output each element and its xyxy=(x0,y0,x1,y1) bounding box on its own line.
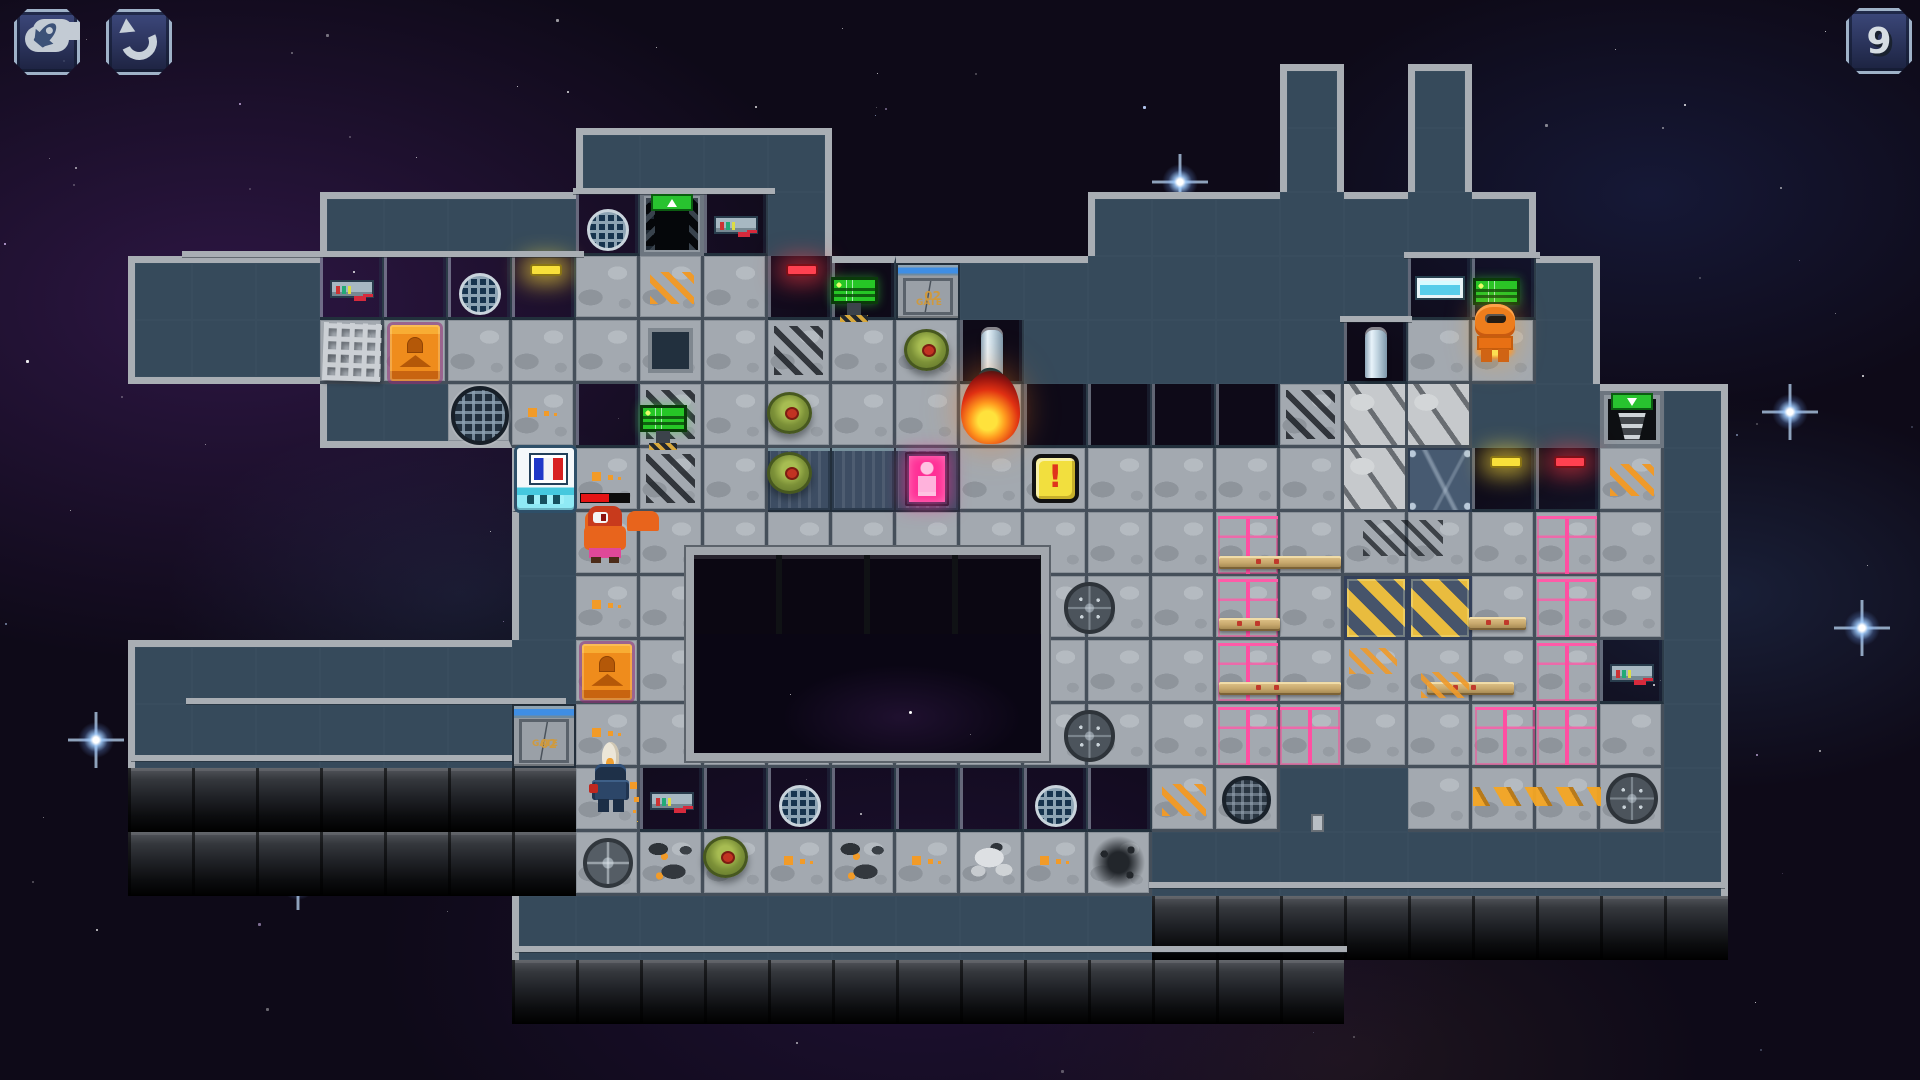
tile-floor-chevrons xyxy=(1600,448,1664,512)
tile-hull xyxy=(960,256,1024,320)
exit-up-sign xyxy=(651,194,693,211)
crate xyxy=(1537,643,1597,701)
tile-hull xyxy=(1344,768,1408,832)
tile-hull xyxy=(192,320,256,384)
tile-engine-block xyxy=(960,960,1024,1024)
skidsmall xyxy=(1363,520,1443,556)
undo-button[interactable] xyxy=(106,9,172,75)
chevsmall xyxy=(1349,648,1397,674)
spaceship-map: GATE02GATE02! xyxy=(0,0,1920,1080)
tile-floor xyxy=(1152,448,1216,512)
tile-hull xyxy=(1024,320,1088,384)
tile-pale-damaged xyxy=(1344,384,1408,448)
pipe xyxy=(1219,556,1341,569)
tile-floor-round-grate xyxy=(576,832,640,896)
manhole xyxy=(1064,710,1115,761)
tile-engine-block xyxy=(1408,896,1472,960)
tile-wall-control-panel xyxy=(1600,640,1664,704)
tile-wall-blue xyxy=(960,768,1024,832)
tile-engine-block xyxy=(512,960,576,1024)
game-stage: GATE02GATE02! 9 xyxy=(0,0,1920,1080)
table xyxy=(904,329,949,371)
tile-engine-block xyxy=(192,832,256,896)
tile-floor-chevrons xyxy=(1152,768,1216,832)
tile-hull xyxy=(128,320,192,384)
tile-wall-vent xyxy=(1024,768,1088,832)
exclaim: ! xyxy=(1032,454,1079,503)
crate xyxy=(1280,707,1340,765)
tile-floor-soot xyxy=(1088,832,1152,896)
tile-engine-block xyxy=(320,768,384,832)
tile-wall-blue xyxy=(1088,768,1152,832)
tile-hull xyxy=(1280,192,1344,256)
tile-hull xyxy=(1664,640,1728,704)
tile-floor xyxy=(1472,512,1536,576)
tile-hull xyxy=(1408,64,1472,128)
tile-hull xyxy=(1664,448,1728,512)
tile-floor xyxy=(1088,448,1152,512)
tile-hull xyxy=(384,640,448,704)
tile-floor xyxy=(1152,512,1216,576)
tile-wall-blue xyxy=(1088,384,1152,448)
tile-floor-orange-dots xyxy=(512,384,576,448)
tile-floor xyxy=(1152,704,1216,768)
tile-engine-block xyxy=(576,960,640,1024)
knight[interactable] xyxy=(590,742,632,814)
french xyxy=(517,448,574,510)
tile-floor xyxy=(1152,640,1216,704)
tile-engine-block xyxy=(384,768,448,832)
tile-hull xyxy=(1280,64,1344,128)
manhole xyxy=(1064,582,1115,633)
tile-wall-blue xyxy=(896,768,960,832)
tile-floor xyxy=(1408,704,1472,768)
tile-floor xyxy=(1600,704,1664,768)
tile-wall-red-light xyxy=(768,256,832,320)
tile-hull xyxy=(1344,256,1408,320)
tile-engine-block xyxy=(1152,960,1216,1024)
ocrate xyxy=(390,325,440,381)
tile-hull xyxy=(1280,320,1344,384)
tile-hull xyxy=(768,128,832,192)
tile-wall-pillar xyxy=(1344,320,1408,384)
tile-floor xyxy=(1344,704,1408,768)
tile-hull xyxy=(320,384,384,448)
switch[interactable] xyxy=(1311,814,1324,832)
tile-floor xyxy=(1600,576,1664,640)
tile-floor xyxy=(832,320,896,384)
tile-floor-white-blob xyxy=(960,832,1024,896)
crate xyxy=(1537,516,1597,574)
tile-hull xyxy=(1472,384,1536,448)
tile-engine-block xyxy=(320,832,384,896)
hazardstrip xyxy=(1473,787,1601,806)
crate xyxy=(1475,707,1535,765)
tile-hull xyxy=(384,384,448,448)
tile-floor xyxy=(1280,448,1344,512)
tile-exit-stairs-down[interactable] xyxy=(1600,384,1664,448)
tile-engine-block xyxy=(1472,896,1536,960)
biggrate xyxy=(451,386,510,445)
tile-hull xyxy=(1152,256,1216,320)
tile-hull xyxy=(512,192,576,256)
tile-hull xyxy=(192,256,256,320)
tile-hull xyxy=(1664,768,1728,832)
tile-hull xyxy=(320,640,384,704)
tile-hull xyxy=(1536,320,1600,384)
pit xyxy=(686,547,1049,761)
tile-hull xyxy=(1408,128,1472,192)
hline xyxy=(1149,882,1725,888)
tile-hull xyxy=(576,128,640,192)
gate-number: 02 xyxy=(540,738,557,750)
tile-floor xyxy=(512,320,576,384)
tile-floor-orange-dots xyxy=(576,448,640,512)
tile-floor xyxy=(1088,512,1152,576)
tile-floor xyxy=(1216,448,1280,512)
tile-engine-block xyxy=(448,832,512,896)
tile-hull xyxy=(768,192,832,256)
tile-engine-block xyxy=(704,960,768,1024)
tile-pale-damaged xyxy=(1344,448,1408,512)
tile-hull xyxy=(320,192,384,256)
fleet-button[interactable] xyxy=(14,9,80,75)
tile-floor-debris xyxy=(640,832,704,896)
tile-floor xyxy=(448,320,512,384)
tile-floor xyxy=(704,448,768,512)
pipe xyxy=(1219,682,1341,695)
tile-hull xyxy=(1408,192,1472,256)
tile-hull xyxy=(1216,256,1280,320)
tile-floor xyxy=(576,256,640,320)
tile-wall-blue xyxy=(1152,384,1216,448)
hline xyxy=(1404,252,1540,258)
tile-engine-block xyxy=(448,768,512,832)
tile-engine-block xyxy=(640,960,704,1024)
tile-hull xyxy=(1216,320,1280,384)
tile-floor-skid-marks xyxy=(768,320,832,384)
tile-engine-block xyxy=(256,832,320,896)
tile-hull xyxy=(640,128,704,192)
astronaut[interactable] xyxy=(1472,302,1518,364)
tile-hull xyxy=(1664,704,1728,768)
tile-engine-block xyxy=(1536,896,1600,960)
tile-wall-vent xyxy=(768,768,832,832)
tile-engine-block xyxy=(1344,896,1408,960)
tile-engine-block xyxy=(1600,896,1664,960)
tile-engine-block xyxy=(768,960,832,1024)
tile-floor-skid-marks xyxy=(1280,384,1344,448)
tile-engine-block xyxy=(128,832,192,896)
tile-floor xyxy=(1152,576,1216,640)
table xyxy=(767,452,812,494)
tile-wall-blue xyxy=(1216,384,1280,448)
tile-engine-block xyxy=(1664,896,1728,960)
manhole xyxy=(1606,773,1657,824)
tile-floor-chevrons xyxy=(640,256,704,320)
tile-floor xyxy=(832,384,896,448)
tile-hull xyxy=(1024,256,1088,320)
tile-floor-orange-dots xyxy=(1024,832,1088,896)
hline xyxy=(182,251,584,257)
tile-gate-door[interactable]: GATE02 xyxy=(896,256,960,320)
tile-hull xyxy=(1536,256,1600,320)
enemy[interactable] xyxy=(584,506,626,564)
chevsmall xyxy=(1421,672,1469,698)
tile-floor xyxy=(704,256,768,320)
tile-floor xyxy=(576,320,640,384)
tile-hull xyxy=(1280,256,1344,320)
pipe xyxy=(1469,617,1527,630)
crate xyxy=(1218,707,1278,765)
gate-number: 02 xyxy=(924,290,941,302)
tile-hull xyxy=(512,512,576,576)
tile-engine-block xyxy=(512,768,576,832)
crate xyxy=(1537,579,1597,637)
hline xyxy=(573,188,775,194)
teleporter xyxy=(905,452,949,506)
tile-hull xyxy=(1344,192,1408,256)
tile-hull xyxy=(128,256,192,320)
tile-floor xyxy=(1280,576,1344,640)
tile-floor xyxy=(1600,512,1664,576)
tile-wall-control-panel xyxy=(704,192,768,256)
tile-wall-blue xyxy=(704,768,768,832)
tile-floor xyxy=(960,448,1024,512)
roundgrate xyxy=(1222,776,1271,825)
gate-door-panel: GATE02 xyxy=(519,719,569,763)
tile-hull xyxy=(512,640,576,704)
hline xyxy=(515,946,1347,952)
exit-down-sign xyxy=(1611,393,1653,410)
tile-engine-block xyxy=(1216,960,1280,1024)
tile-wall-blue xyxy=(1024,384,1088,448)
smoke xyxy=(756,402,817,447)
tile-hull xyxy=(256,256,320,320)
tile-engine-block xyxy=(832,960,896,1024)
tile-floor-skid-marks xyxy=(640,448,704,512)
crate xyxy=(1537,707,1597,765)
tile-hull xyxy=(1088,256,1152,320)
tile-hull xyxy=(1664,576,1728,640)
tile-hull xyxy=(1664,512,1728,576)
tile-hull xyxy=(512,576,576,640)
tile-engine-block xyxy=(1088,960,1152,1024)
hline xyxy=(1340,316,1412,322)
tile-hull xyxy=(1472,192,1536,256)
tile-hazard-tile xyxy=(1408,576,1472,640)
tile-hull xyxy=(1216,192,1280,256)
tile-floor-orange-dots xyxy=(896,832,960,896)
tile-engine-block xyxy=(128,768,192,832)
tile-floor xyxy=(1472,576,1536,640)
tile-hull xyxy=(1536,384,1600,448)
tile-floor-dark-hatch xyxy=(640,320,704,384)
hline xyxy=(131,755,512,761)
tile-hull xyxy=(1088,192,1152,256)
tile-floor-orange-dots xyxy=(576,576,640,640)
tile-hull xyxy=(448,192,512,256)
tile-wall-window xyxy=(1408,256,1472,320)
moves-counter-button[interactable]: 9 xyxy=(1846,8,1912,74)
tile-wall-vent xyxy=(576,192,640,256)
monitor xyxy=(831,277,878,325)
tile-cracked-panel xyxy=(1408,448,1472,512)
moves-counter-value: 9 xyxy=(1846,8,1912,74)
tile-wall-yellow-light xyxy=(512,256,576,320)
tile-engine-block xyxy=(384,832,448,896)
tile-engine-block xyxy=(1024,960,1088,1024)
tile-hull xyxy=(256,320,320,384)
tile-hull xyxy=(1152,192,1216,256)
tile-gate-door[interactable]: GATE02 xyxy=(512,704,576,768)
tile-hull xyxy=(1280,128,1344,192)
tile-wall-control-panel xyxy=(320,256,384,320)
tile-engine-block xyxy=(896,960,960,1024)
tile-hull xyxy=(1088,320,1152,384)
tile-hull xyxy=(704,128,768,192)
tile-engine-block xyxy=(256,768,320,832)
pipe xyxy=(1219,618,1280,631)
fire xyxy=(961,371,1020,444)
hline xyxy=(186,698,567,704)
tile-floor-debris xyxy=(832,832,896,896)
gate-door-panel: GATE02 xyxy=(903,278,953,315)
meshdebris xyxy=(322,322,382,382)
tile-floor-orange-dots xyxy=(768,832,832,896)
tile-engine-block xyxy=(192,768,256,832)
tile-wall-red-light xyxy=(1536,448,1600,512)
tile-wall-control-panel xyxy=(640,768,704,832)
table xyxy=(703,836,748,878)
tile-pale-damaged xyxy=(1408,384,1472,448)
tile-hull xyxy=(128,640,192,704)
tile-wall-blue xyxy=(832,768,896,832)
tile-floor xyxy=(1408,320,1472,384)
tile-engine-block xyxy=(1280,960,1344,1024)
tile-hazard-tile xyxy=(1344,576,1408,640)
tile-exit-door-up[interactable] xyxy=(640,192,704,256)
tile-floor xyxy=(896,384,960,448)
tile-wall-vent xyxy=(448,256,512,320)
tile-wall-blue xyxy=(576,384,640,448)
enemy-health-bar xyxy=(581,494,629,502)
monitor-screen xyxy=(831,277,878,304)
tile-floor xyxy=(1408,768,1472,832)
tile-hull xyxy=(448,640,512,704)
ocrate xyxy=(582,644,632,700)
tile-hull xyxy=(256,640,320,704)
tile-wall-yellow-light xyxy=(1472,448,1536,512)
tile-wall-blue xyxy=(384,256,448,320)
tile-engine-block xyxy=(512,832,576,896)
tile-hull xyxy=(384,192,448,256)
tile-floor xyxy=(1088,640,1152,704)
tile-dark-grate-floor xyxy=(832,448,896,512)
tile-hull xyxy=(1152,320,1216,384)
tile-hull xyxy=(192,640,256,704)
tile-hull xyxy=(1664,384,1728,448)
